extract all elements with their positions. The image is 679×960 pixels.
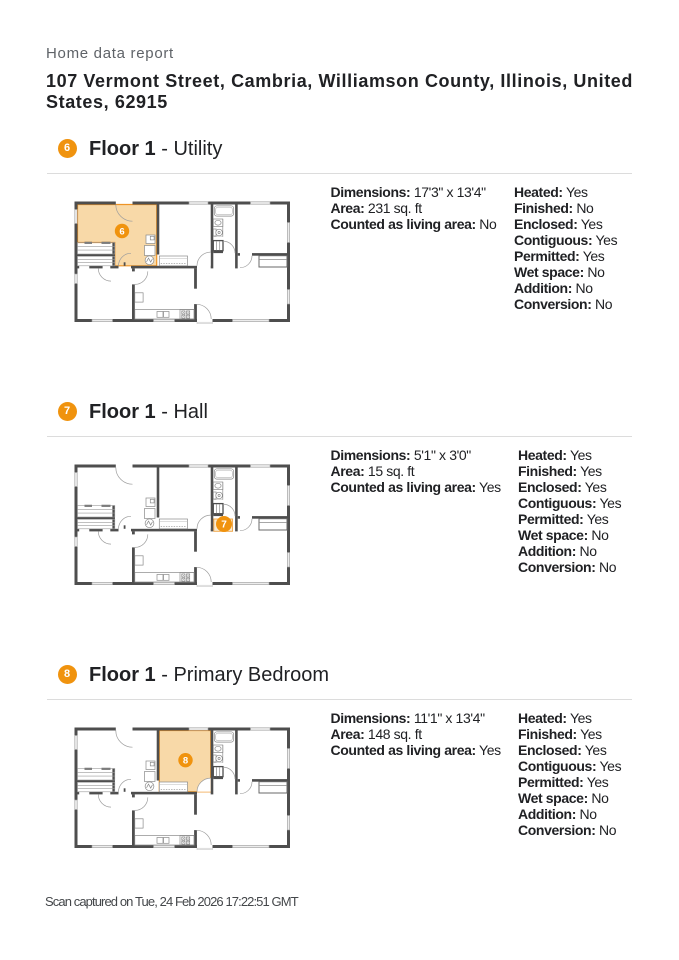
svg-text:8: 8	[183, 756, 188, 767]
svg-text:6: 6	[119, 226, 124, 237]
svg-text:7: 7	[221, 520, 227, 531]
